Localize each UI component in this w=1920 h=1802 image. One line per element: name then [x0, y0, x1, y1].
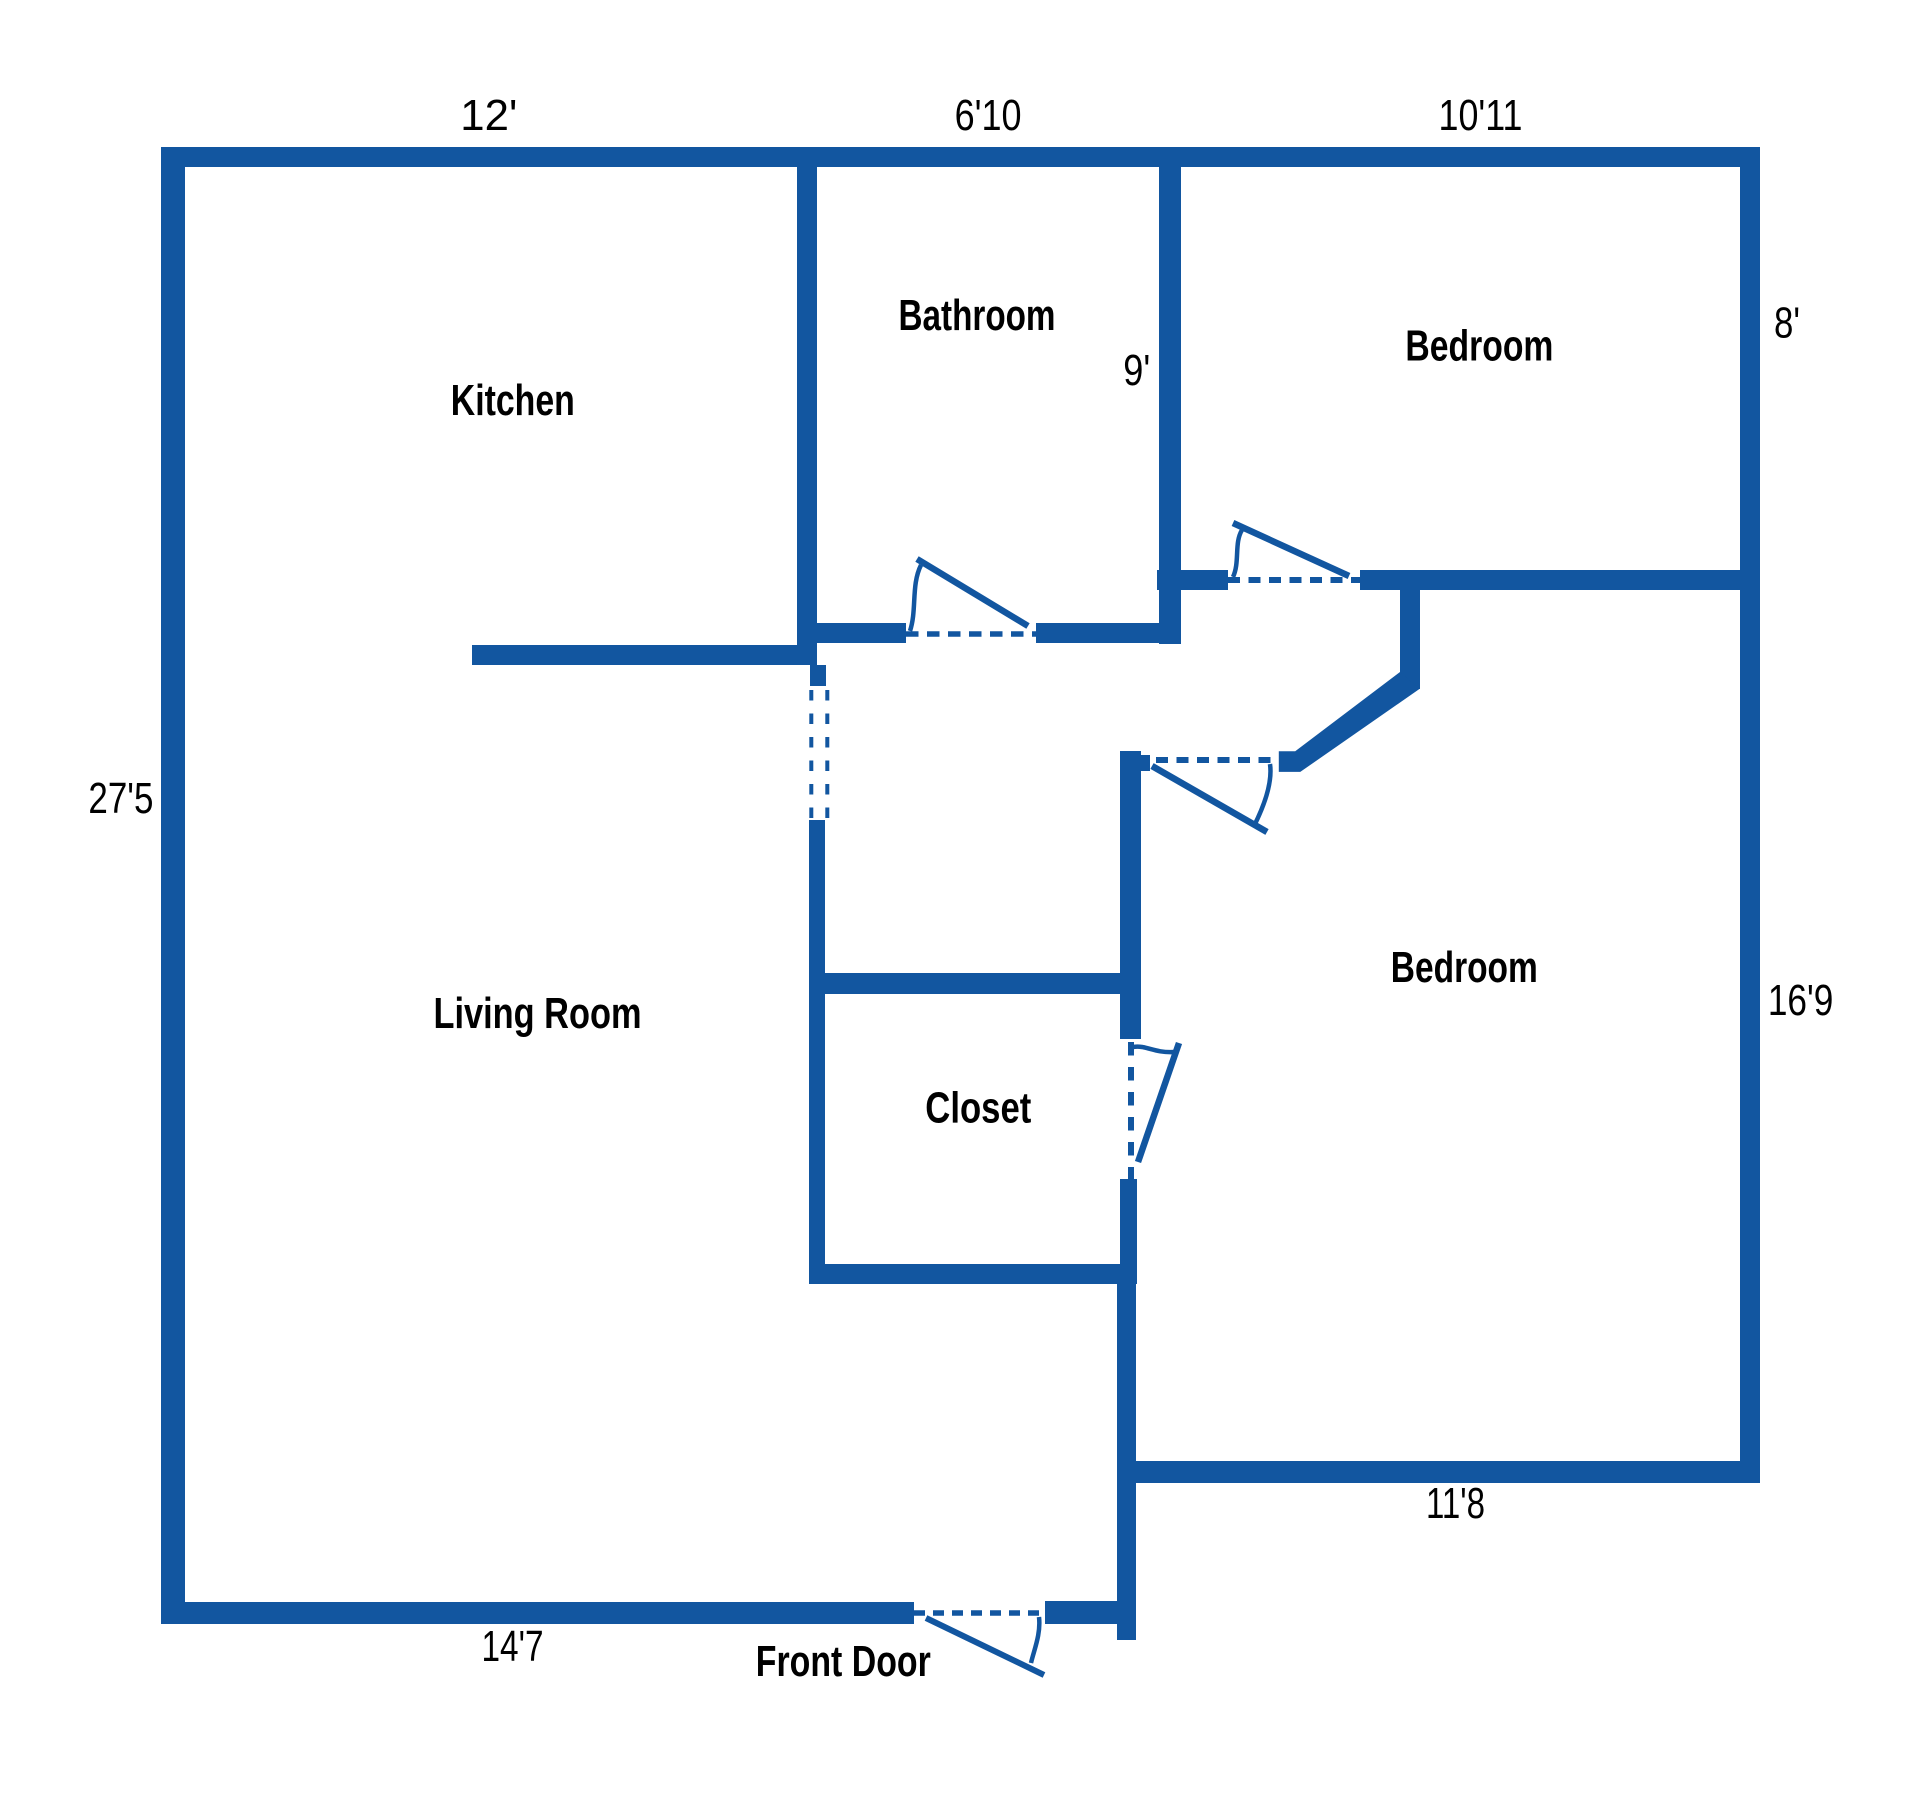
svg-text:10'11: 10'11 [1439, 91, 1523, 140]
svg-text:Living Room: Living Room [434, 989, 642, 1038]
svg-text:11'8: 11'8 [1426, 1479, 1485, 1528]
svg-text:8': 8' [1774, 299, 1800, 348]
svg-text:16'9: 16'9 [1768, 976, 1834, 1025]
svg-text:Bathroom: Bathroom [899, 291, 1056, 340]
svg-text:Front Door: Front Door [756, 1637, 931, 1686]
svg-text:27'5: 27'5 [88, 774, 153, 823]
svg-text:Bedroom: Bedroom [1405, 322, 1553, 371]
svg-text:6'10: 6'10 [955, 91, 1022, 140]
svg-text:14'7: 14'7 [482, 1622, 544, 1671]
svg-text:Kitchen: Kitchen [451, 376, 575, 425]
svg-text:Closet: Closet [925, 1084, 1031, 1133]
svg-text:Bedroom: Bedroom [1391, 943, 1538, 992]
svg-text:9': 9' [1123, 346, 1150, 395]
svg-text:12': 12' [460, 91, 517, 140]
